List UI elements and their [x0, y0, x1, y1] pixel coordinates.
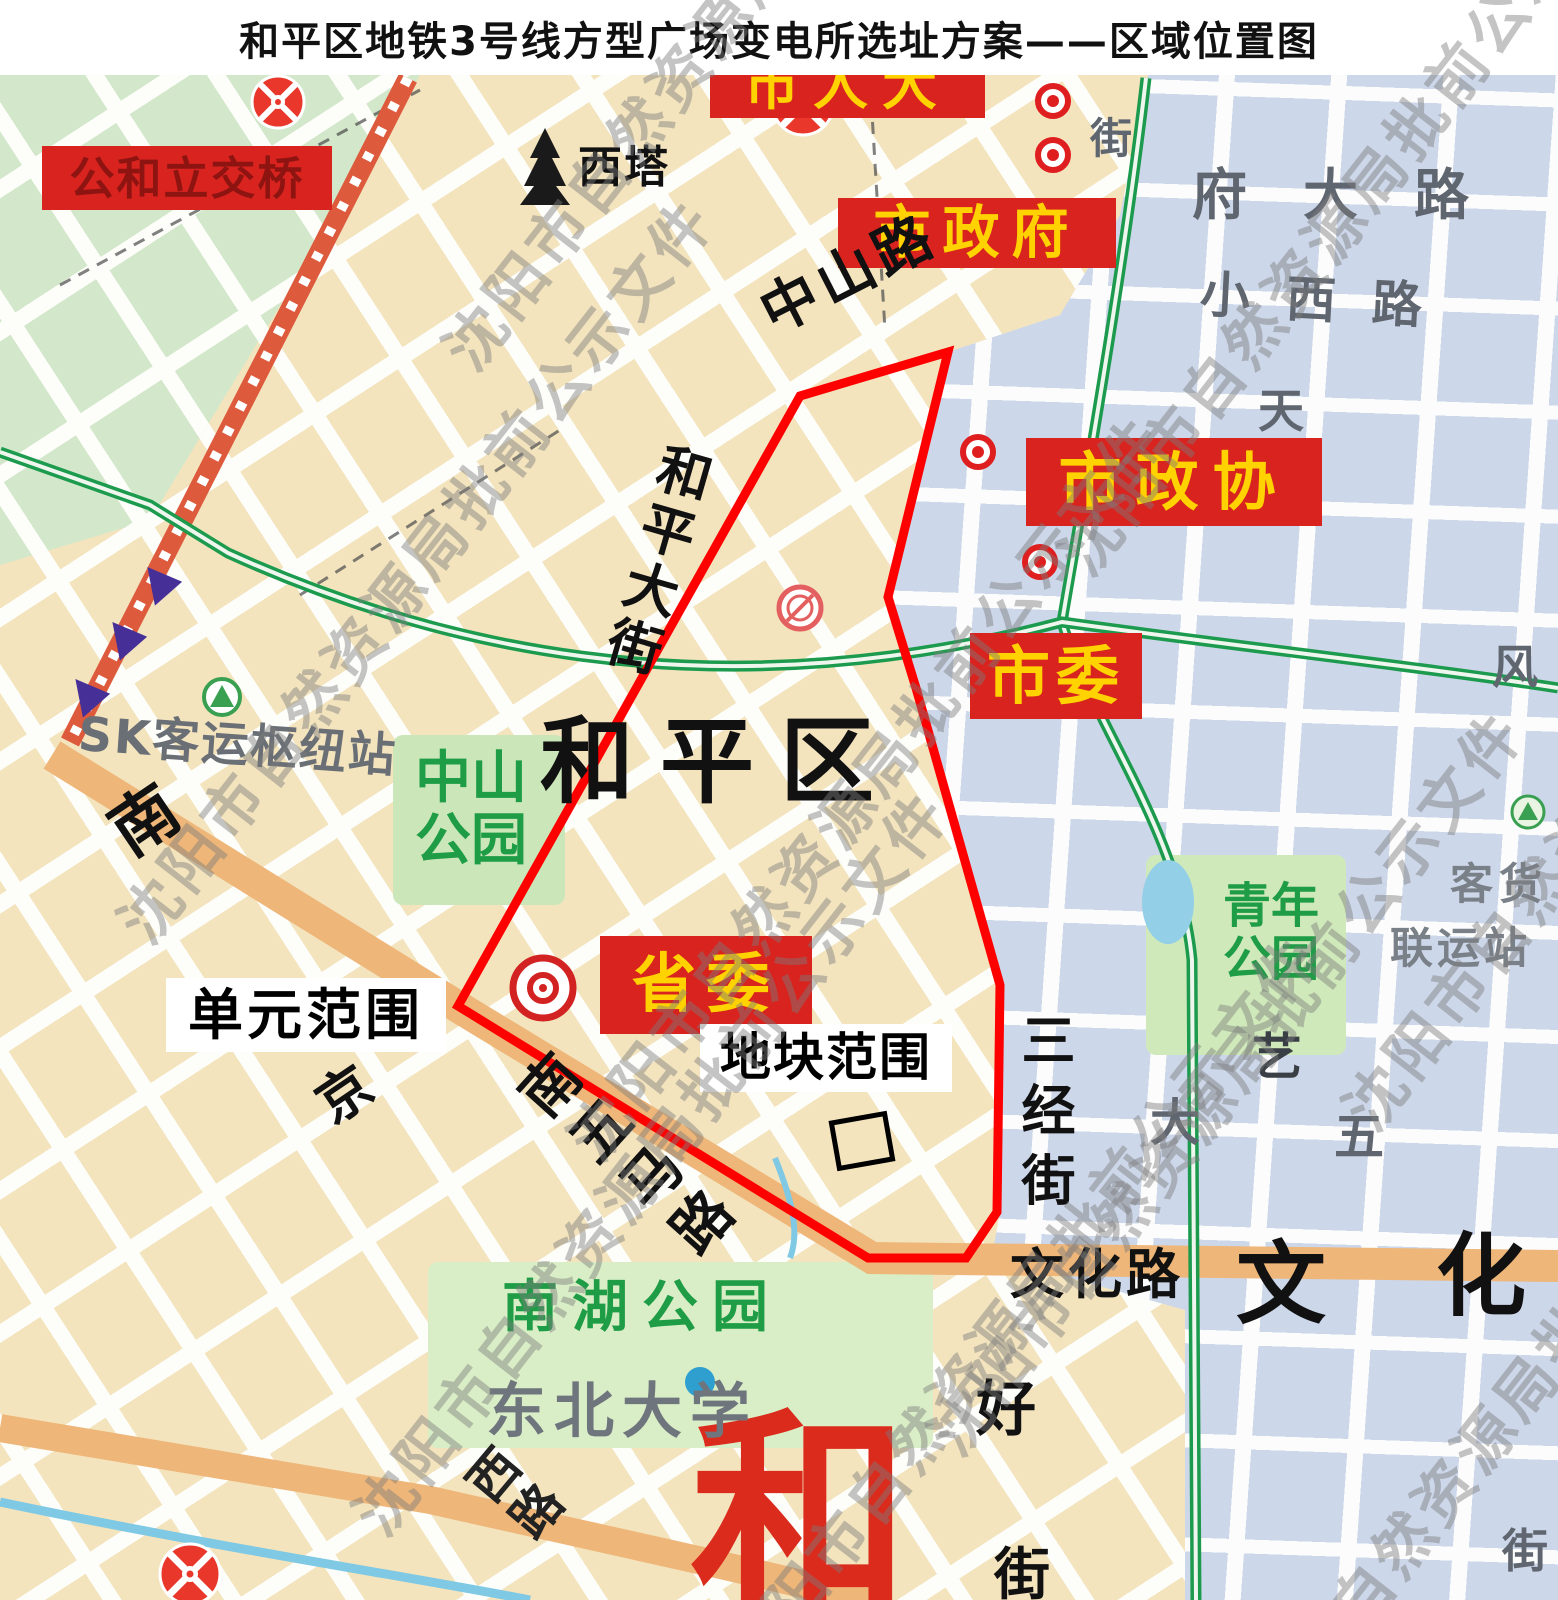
- metro-station-icon: [1025, 547, 1055, 577]
- label-city-peoples-congress: 市人大: [710, 75, 985, 118]
- road-hua-big-char: 化: [1436, 1232, 1526, 1322]
- park-triangle-icon: [204, 679, 240, 715]
- pagoda-icon: [520, 128, 570, 205]
- metro-station-crossed-icon: [779, 587, 821, 629]
- label-city-cppcc: 市政协: [1026, 438, 1322, 526]
- road-wen-big-char: 文: [1236, 1240, 1326, 1330]
- place-lianyun-station: 联运站: [1390, 928, 1531, 971]
- street-char-bottom-right: 街: [1502, 1528, 1548, 1574]
- plot-scope-label: 地块范围: [700, 1024, 952, 1092]
- street-char-wu: 五: [1334, 1112, 1384, 1162]
- unit-scope-label: 单元范围: [166, 978, 446, 1052]
- street-char-da: 大: [1150, 1098, 1200, 1148]
- map-canvas: 市人大 市政府 市政协 市委 省委 公和立交桥 单元范围 地块范围 和平区 和 …: [0, 75, 1558, 1600]
- metro-station-icon: [1038, 140, 1068, 170]
- interchange-flower-icon: [160, 1544, 220, 1600]
- park-qingnian-label: 青年公园: [1216, 880, 1326, 986]
- label-gonghe-overpass: 公和立交桥: [42, 146, 332, 210]
- road-sanhao-jie-char: 街: [994, 1548, 1050, 1600]
- street-char-tian: 天: [1258, 388, 1304, 434]
- road-fuda: 府大路: [1192, 168, 1525, 223]
- pond: [1142, 860, 1194, 944]
- page-title: 和平区地铁3号线方型广场变电所选址方案——区域位置图: [239, 9, 1319, 67]
- district-name: 和平区: [540, 716, 900, 810]
- interchange-flower-icon: [252, 76, 304, 128]
- metro-bullseye-icon: [513, 958, 573, 1018]
- place-neu: 东北大学: [486, 1382, 758, 1442]
- park-nanhu-label: 南湖公园: [502, 1280, 782, 1336]
- park-zhongshan-label: 中山公园: [408, 748, 534, 871]
- plot-square-icon: [831, 1114, 892, 1169]
- place-kehuo: 客货: [1450, 864, 1548, 907]
- dashed-boundary-line: [300, 430, 560, 595]
- label-provincial-committee: 省委: [600, 936, 812, 1034]
- tree-icon: [1512, 796, 1544, 828]
- road-sanhao-hao-char: 好: [976, 1380, 1036, 1440]
- place-xita: 西塔: [578, 146, 670, 190]
- metro-station-icon: [963, 437, 993, 467]
- road-xiaoxi: 小西路: [1199, 269, 1459, 332]
- road-sanjing-street: 三经街: [1016, 1012, 1070, 1222]
- map-document: 和平区地铁3号线方型广场变电所选址方案——区域位置图: [0, 0, 1558, 1600]
- street-char-feng: 风: [1492, 644, 1538, 690]
- transit-line-north-south: [1062, 78, 1196, 1600]
- street-char-yi: 艺: [1252, 1032, 1302, 1082]
- metro-station-icon: [1038, 86, 1068, 116]
- transit-line-west-east: [0, 452, 1558, 688]
- road-wenhua: 文化路: [1010, 1248, 1184, 1302]
- transit-line-center: [1062, 78, 1196, 1600]
- street-char-top: 街: [1090, 118, 1132, 160]
- title-bar: 和平区地铁3号线方型广场变电所选址方案——区域位置图: [0, 0, 1558, 75]
- label-city-committee: 市委: [970, 633, 1142, 719]
